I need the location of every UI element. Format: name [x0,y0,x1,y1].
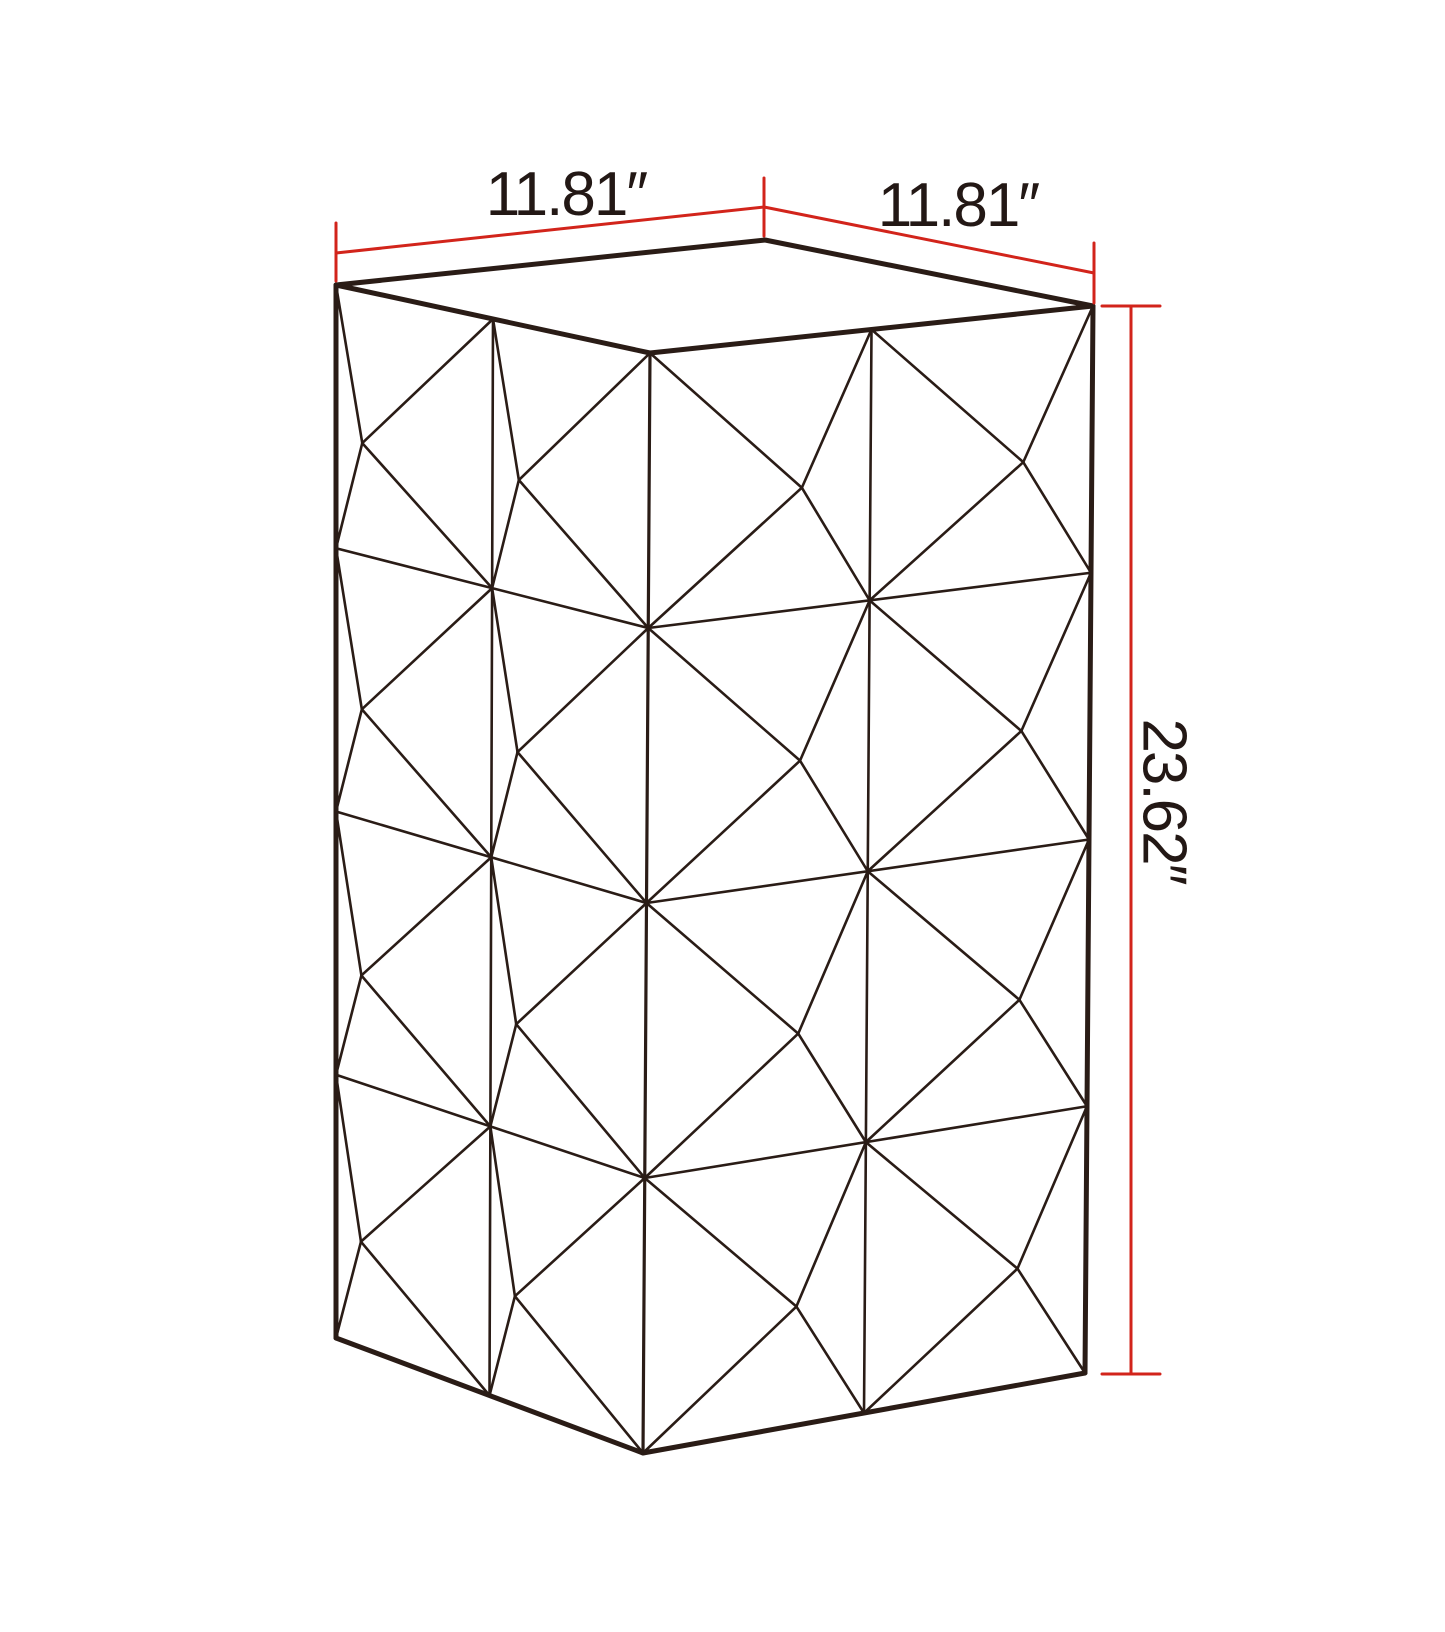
left-face-facet-edge [336,975,361,1074]
right-face-facet-edge [868,731,1022,871]
left-face-facet-edge [491,857,516,1024]
left-face-facet-edge [490,1126,515,1296]
box-outline [336,240,1093,1453]
right-face-facet-edge [1017,1269,1085,1373]
right-face-facet-edge [647,903,799,1034]
left-face-facet-edge [362,709,491,857]
dimension-lines [336,178,1160,1374]
left-face-facet-edge [361,1126,490,1241]
right-face-facet-edge [648,488,802,628]
left-face-facet-edge [336,709,362,811]
left-face-facet-edge [362,443,492,588]
right-face-facet-edge [648,628,800,761]
right-face-facet-edge [1023,306,1093,462]
height-label: 23.62″ [1130,718,1199,884]
left-face-facet-edge [519,480,648,628]
right-face-facet-edge [1017,1106,1087,1268]
width-right-label: 11.81″ [878,171,1040,240]
right-face-facet-edge [796,1307,864,1413]
right-face-facet-edge [1023,462,1091,573]
left-face-facet-edge [516,1024,645,1178]
left-face-facet-edge [336,548,362,709]
left-face-facet-edge [515,1178,645,1296]
left-face-facet-edge [336,812,361,976]
right-face-facet-edge [868,871,1020,1000]
left-face-facet-edge [490,1296,515,1395]
right-face-facet-edge [1019,1000,1087,1106]
right-face-facet-edge [800,761,868,872]
left-face-facet-edge [516,903,646,1024]
left-face-facet-edge [336,1075,361,1242]
width-left-label: 11.81″ [486,160,648,229]
right-face-facet-edge [802,330,872,488]
right-face-facet-edge [872,330,1024,463]
pedestal-dimension-diagram: 11.81″ 11.81″ 23.62″ [0,0,1445,1632]
right-face-facet-edge [870,462,1024,600]
right-face-facet-edge [870,600,1022,731]
left-face-facet-edge [493,319,519,480]
right-face-facet-edge [1021,573,1091,731]
left-face-facet-edge [336,285,362,443]
drawing-canvas: 11.81″ 11.81″ 23.62″ [0,0,1445,1632]
right-face-facet-edge [645,1178,797,1307]
right-face-facet-edge [800,600,870,760]
right-face-facet-edge [647,761,801,903]
right-face-facet-edge [798,871,868,1033]
left-face-facet-edge [336,1242,361,1338]
left-face-facet-edge [491,752,517,857]
left-face-facet-edge [362,319,493,443]
left-face-facet-edge [518,752,647,903]
left-face-facet-edge [362,588,492,709]
facet-lines [336,285,1093,1453]
left-face-facet-edge [518,628,649,752]
left-face-facet-edge [519,353,650,480]
right-face-facet-edge [1019,840,1089,1000]
top-face [336,240,1093,353]
right-face-facet-edge [798,1034,866,1143]
right-face-facet-edge [866,1142,1018,1268]
left-face-facet-edge [336,443,362,548]
left-face-facet-edge [492,588,517,752]
left-face-facet-edge [490,1024,516,1126]
right-face-facet-edge [650,353,802,488]
right-face-facet-edge [802,488,870,601]
right-face-facet-edge [1021,731,1089,840]
left-face-facet-edge [361,857,491,975]
left-face-facet-edge [492,480,519,588]
right-face-facet-edge [796,1142,865,1306]
